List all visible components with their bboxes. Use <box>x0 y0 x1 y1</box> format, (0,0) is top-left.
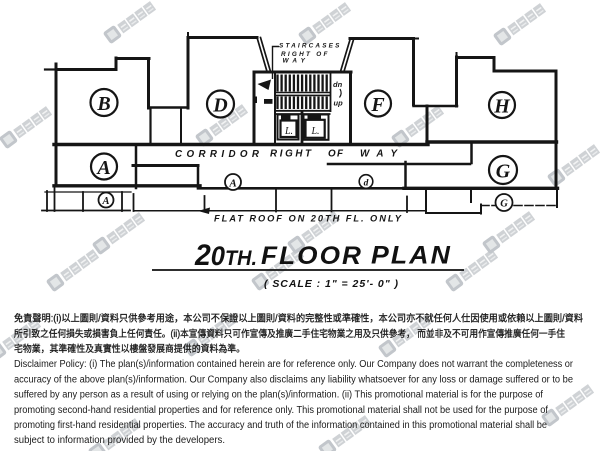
svg-text:promoting first-hand residenti: promoting first-hand residential propert… <box>14 420 547 431</box>
svg-text:A: A <box>101 196 109 207</box>
svg-text:OF: OF <box>328 149 345 160</box>
svg-text:B: B <box>96 93 110 115</box>
svg-text:L.: L. <box>311 126 320 137</box>
svg-text:A: A <box>95 157 110 179</box>
svg-text:suffered by any person as a re: suffered by any person as a result of us… <box>14 390 543 401</box>
svg-text:d: d <box>364 179 369 189</box>
svg-text:accuracy of the above plan(s)/: accuracy of the above plan(s)/informatio… <box>14 374 573 385</box>
svg-text:H: H <box>493 96 511 118</box>
svg-text:G: G <box>496 161 511 183</box>
svg-text:RIGHT: RIGHT <box>270 149 313 160</box>
svg-text:promoting second-hand resident: promoting second-hand residential proper… <box>14 405 548 416</box>
svg-text:G: G <box>500 199 508 210</box>
svg-text:F: F <box>370 94 385 116</box>
svg-text:CORRIDOR: CORRIDOR <box>175 149 261 160</box>
svg-text:dn: dn <box>333 80 343 89</box>
svg-text:WAY: WAY <box>360 149 399 160</box>
svg-text:宅物業，其準確性及真實性以樓盤發展商提供的資料為準。: 宅物業，其準確性及真實性以樓盤發展商提供的資料為準。 <box>14 342 245 355</box>
svg-text:STAIRCASES: STAIRCASES <box>279 43 340 50</box>
svg-text:A: A <box>228 178 236 190</box>
svg-text:PLAN: PLAN <box>371 242 452 270</box>
svg-text:D: D <box>212 95 227 117</box>
svg-text:( SCALE : 1" = 25'- 0" ): ( SCALE : 1" = 25'- 0" ) <box>264 278 399 290</box>
svg-text:up: up <box>334 99 344 108</box>
svg-text:subject to information provide: subject to information provided by the d… <box>14 435 225 446</box>
svg-text:20TH.: 20TH. <box>194 239 257 272</box>
svg-text:FLAT ROOF ON 20TH FL. ONLY: FLAT ROOF ON 20TH FL. ONLY <box>214 214 402 224</box>
svg-text:WAY: WAY <box>283 57 306 64</box>
svg-text:Disclaimer Policy: (i) The pla: Disclaimer Policy: (i) The plan(s)/infor… <box>14 359 574 370</box>
svg-text:所引致之任何損失或損害負上任何責任。(ii)本宣傳資料只可作: 所引致之任何損失或損害負上任何責任。(ii)本宣傳資料只可作宣傳及推廣二手住宅物… <box>14 327 565 340</box>
svg-text:免責聲明:(i)以上圖則/資料只供參考用途，本公司不保證以上: 免責聲明:(i)以上圖則/資料只供參考用途，本公司不保證以上圖則/資料的完整性或… <box>14 312 583 325</box>
svg-text:L.: L. <box>284 126 293 137</box>
svg-text:FLOOR: FLOOR <box>261 242 363 270</box>
